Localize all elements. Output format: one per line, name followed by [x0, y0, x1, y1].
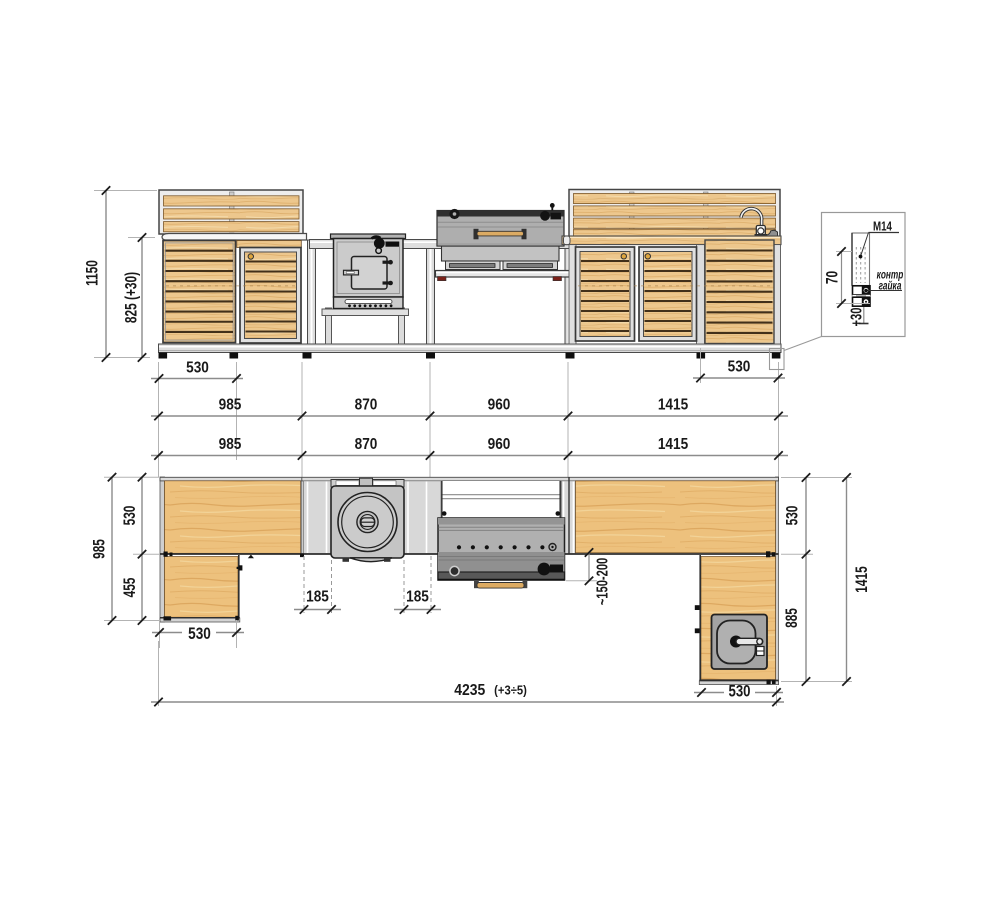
svg-text:825 (+30): 825 (+30)	[123, 272, 141, 323]
svg-text:1415: 1415	[658, 436, 688, 453]
svg-text:M14: M14	[873, 220, 893, 233]
svg-text:гайка: гайка	[879, 280, 902, 293]
svg-text:960: 960	[488, 397, 511, 414]
svg-text:985: 985	[219, 436, 242, 453]
svg-text:985: 985	[91, 539, 109, 559]
svg-text:985: 985	[219, 397, 242, 414]
svg-text:(+3÷5): (+3÷5)	[494, 683, 527, 698]
svg-text:870: 870	[355, 436, 378, 453]
svg-text:530: 530	[186, 360, 209, 377]
svg-text:~150-200: ~150-200	[594, 558, 611, 605]
svg-text:885: 885	[783, 608, 801, 628]
svg-text:1150: 1150	[84, 260, 102, 286]
svg-text:530: 530	[188, 625, 211, 644]
svg-text:70: 70	[824, 271, 842, 284]
svg-text:530: 530	[728, 682, 750, 701]
svg-text:185: 185	[306, 589, 329, 606]
svg-text:4235: 4235	[454, 682, 485, 699]
svg-text:530: 530	[728, 359, 751, 376]
svg-text:1415: 1415	[658, 397, 688, 414]
svg-text:870: 870	[355, 397, 378, 414]
svg-text:530: 530	[121, 506, 139, 526]
svg-text:185: 185	[406, 589, 429, 606]
svg-text:530: 530	[784, 506, 802, 526]
svg-text:455: 455	[121, 578, 139, 598]
svg-text:+30: +30	[848, 308, 865, 327]
svg-text:960: 960	[488, 436, 511, 453]
svg-text:1415: 1415	[853, 566, 871, 592]
